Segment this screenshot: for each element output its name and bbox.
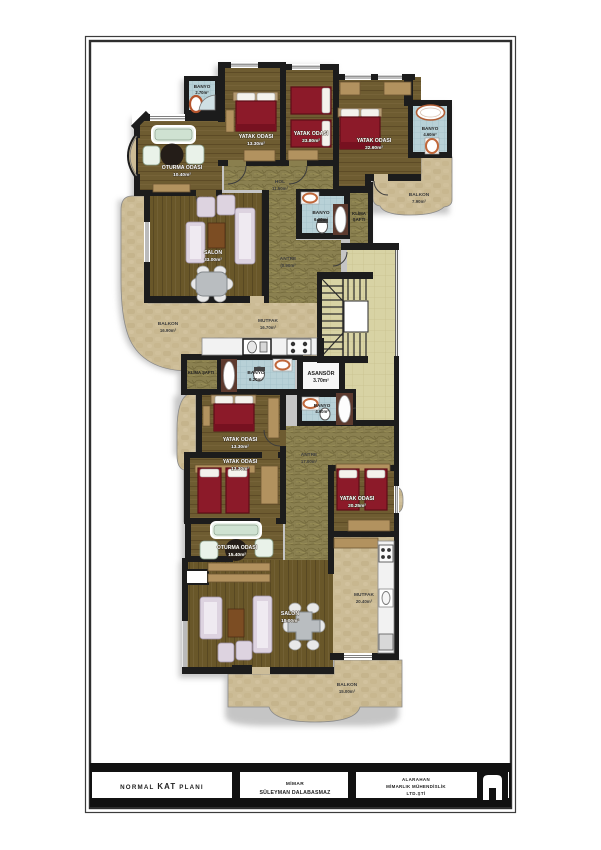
svg-text:SÜLEYMAN DALABASMAZ: SÜLEYMAN DALABASMAZ: [260, 789, 332, 796]
svg-text:23.80m²: 23.80m²: [302, 138, 320, 144]
svg-text:OTURMA ODASI: OTURMA ODASI: [162, 165, 203, 171]
svg-text:6.20m²: 6.20m²: [314, 217, 328, 222]
svg-text:MUTFAK: MUTFAK: [354, 592, 375, 598]
svg-text:YATAK ODASI: YATAK ODASI: [239, 134, 274, 140]
svg-text:BANYO: BANYO: [312, 210, 330, 216]
svg-text:YATAK ODASI: YATAK ODASI: [357, 138, 392, 144]
svg-text:MİMARLIK MÜHENDİSLİK: MİMARLIK MÜHENDİSLİK: [386, 784, 446, 789]
svg-text:6.20m²: 6.20m²: [249, 377, 263, 382]
svg-text:LTD.ŞTİ: LTD.ŞTİ: [406, 791, 425, 796]
svg-text:BALKON: BALKON: [409, 192, 430, 198]
svg-text:15.40m²: 15.40m²: [228, 552, 246, 558]
svg-text:KLİMA: KLİMA: [352, 211, 367, 216]
svg-text:BANYO: BANYO: [194, 84, 211, 89]
svg-text:2.70m²: 2.70m²: [195, 90, 209, 95]
svg-text:MİMAR: MİMAR: [286, 780, 304, 787]
svg-text:SALON: SALON: [281, 611, 299, 617]
svg-text:KLİMA ŞAFTI: KLİMA ŞAFTI: [188, 370, 214, 375]
svg-text:ASANSÖR: ASANSÖR: [308, 370, 335, 377]
svg-text:BALKON: BALKON: [337, 682, 358, 688]
svg-text:YATAK ODASI: YATAK ODASI: [223, 437, 258, 443]
svg-text:17.00m²: 17.00m²: [301, 459, 318, 464]
svg-text:16.90m²: 16.90m²: [160, 328, 177, 333]
svg-text:BALKON: BALKON: [158, 321, 179, 327]
svg-text:MUTFAK: MUTFAK: [258, 318, 279, 324]
svg-text:11.50m²: 11.50m²: [272, 186, 289, 191]
svg-text:4.60m²: 4.60m²: [315, 409, 329, 414]
svg-text:3.70m²: 3.70m²: [313, 378, 329, 384]
svg-text:20.40m²: 20.40m²: [356, 599, 373, 604]
svg-text:22.60m²: 22.60m²: [365, 145, 383, 151]
svg-text:15.00m²: 15.00m²: [339, 689, 356, 694]
svg-text:BANYO: BANYO: [422, 126, 439, 131]
svg-text:SALON: SALON: [204, 250, 222, 256]
svg-text:ALARAHAN: ALARAHAN: [402, 777, 430, 782]
svg-text:13.30m²: 13.30m²: [247, 141, 265, 147]
svg-text:BANYO: BANYO: [247, 370, 265, 376]
svg-text:ŞAFTI: ŞAFTI: [353, 217, 366, 222]
svg-text:20.25m²: 20.25m²: [348, 503, 366, 509]
svg-text:OTURMA ODASI: OTURMA ODASI: [217, 545, 258, 551]
svg-text:ANTRE: ANTRE: [280, 256, 297, 262]
svg-text:YATAK ODASI: YATAK ODASI: [223, 459, 258, 465]
svg-text:4.60m²: 4.60m²: [423, 132, 437, 137]
svg-text:(0.90m²: (0.90m²: [280, 263, 296, 268]
svg-text:YATAK ODASI: YATAK ODASI: [294, 131, 329, 137]
svg-text:10.40m²: 10.40m²: [173, 172, 191, 178]
svg-text:ANTRE: ANTRE: [301, 452, 318, 458]
svg-text:13.30m²: 13.30m²: [231, 466, 249, 472]
svg-text:YATAK ODASI: YATAK ODASI: [340, 496, 375, 502]
svg-text:HOL: HOL: [275, 179, 285, 185]
svg-text:NORMAL KAT PLANI: NORMAL KAT PLANI: [120, 782, 204, 791]
svg-text:13.30m²: 13.30m²: [231, 444, 249, 450]
svg-text:33.00m²: 33.00m²: [204, 257, 222, 263]
svg-text:BANYO: BANYO: [314, 403, 331, 408]
svg-text:7.90m²: 7.90m²: [412, 199, 426, 204]
svg-text:18.00m²: 18.00m²: [281, 618, 299, 624]
svg-text:16.70m²: 16.70m²: [260, 325, 277, 330]
